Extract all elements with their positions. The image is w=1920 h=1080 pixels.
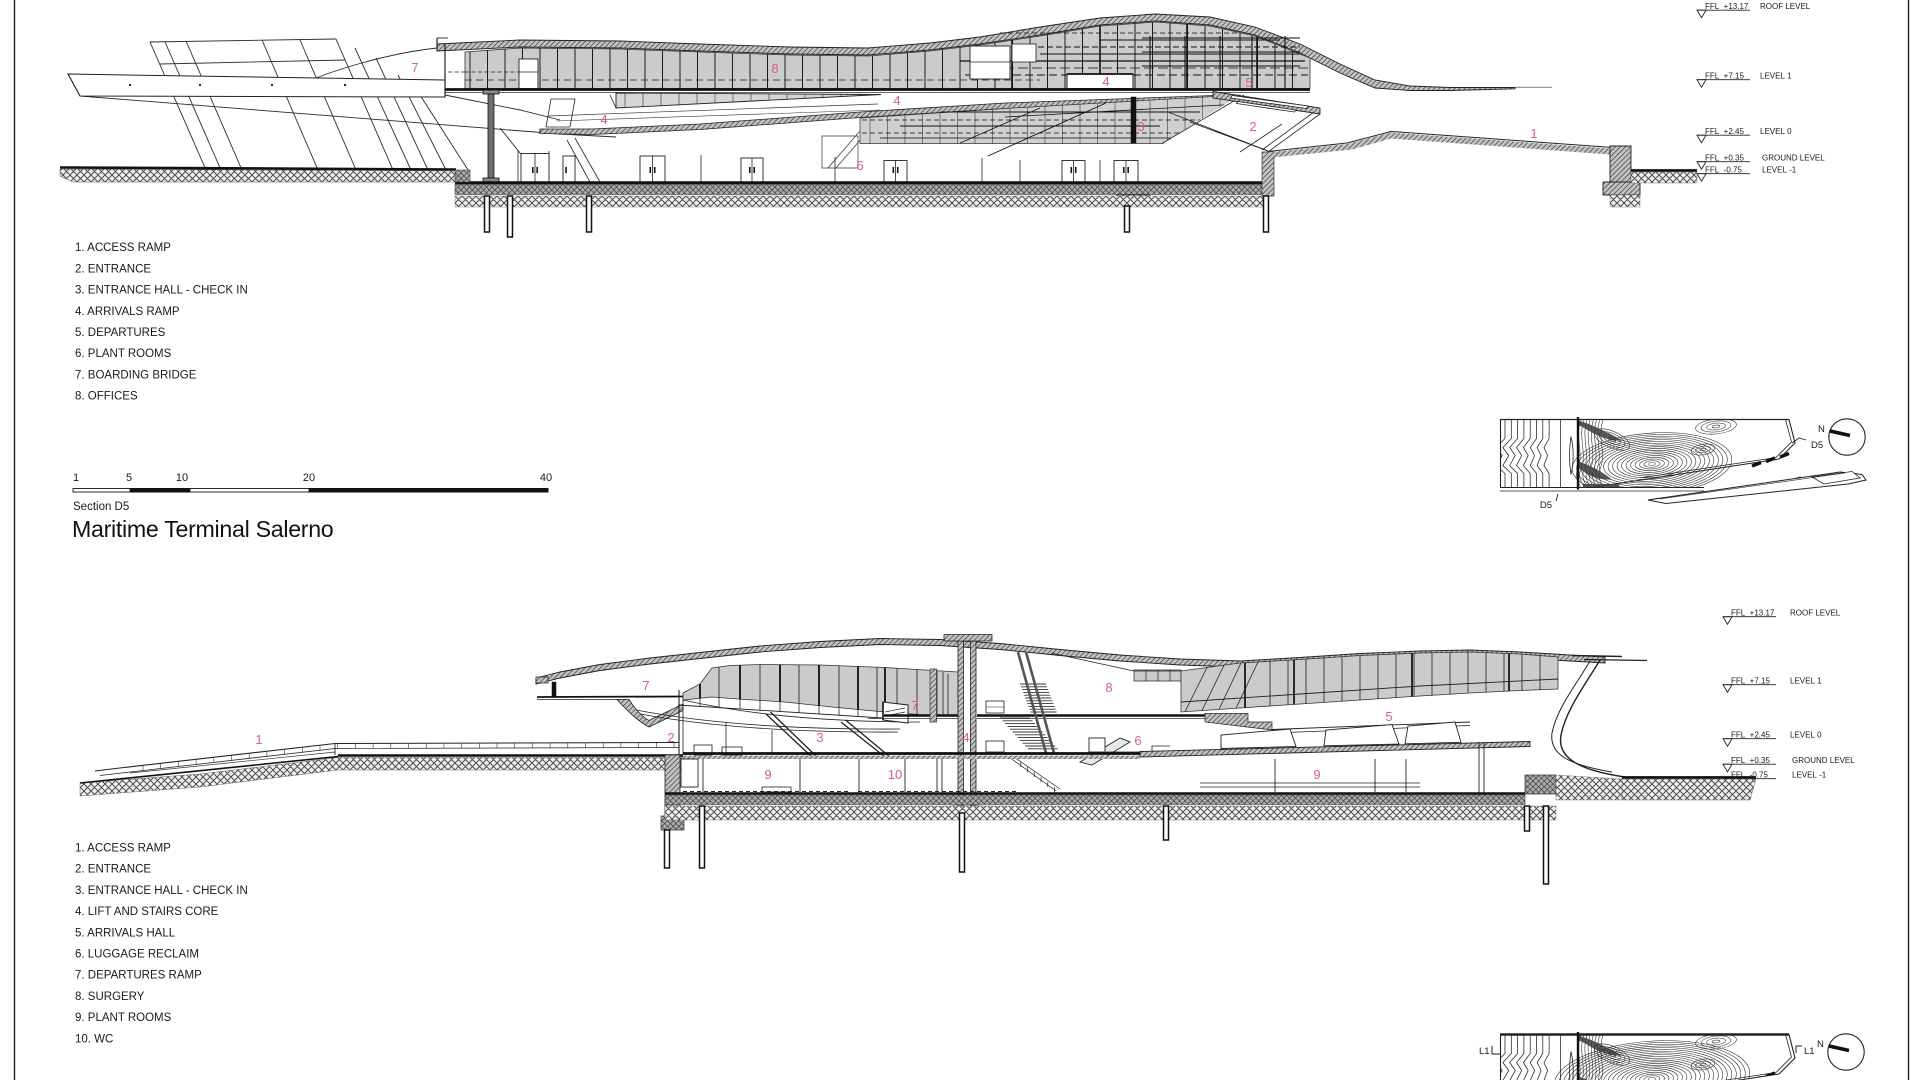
svg-text:N: N	[1817, 1039, 1824, 1050]
svg-text:1. ACCESS RAMP: 1. ACCESS RAMP	[75, 843, 171, 855]
svg-text:3. ENTRANCE HALL - CHECK IN: 3. ENTRANCE HALL - CHECK IN	[75, 885, 248, 897]
svg-text:10. WC: 10. WC	[75, 1033, 113, 1045]
svg-text:10: 10	[176, 472, 188, 484]
svg-text:5. DEPARTURES: 5. DEPARTURES	[75, 327, 166, 339]
svg-text:4: 4	[1102, 74, 1109, 89]
svg-text:4: 4	[600, 112, 607, 127]
svg-text:N: N	[1818, 424, 1825, 435]
svg-text:10: 10	[888, 767, 902, 782]
svg-text:L1: L1	[1804, 1046, 1815, 1057]
svg-text:2. ENTRANCE: 2. ENTRANCE	[75, 263, 151, 275]
svg-text:2: 2	[1249, 119, 1256, 134]
svg-text:8: 8	[1105, 680, 1112, 695]
svg-text:LEVEL 0: LEVEL 0	[1760, 127, 1792, 136]
svg-text:Maritime Terminal Salerno: Maritime Terminal Salerno	[72, 516, 333, 542]
svg-text:2: 2	[667, 730, 674, 745]
svg-text:1: 1	[255, 732, 262, 747]
svg-text:LEVEL 1: LEVEL 1	[1760, 72, 1792, 81]
svg-text:LEVEL -1: LEVEL -1	[1762, 166, 1797, 175]
svg-text:40: 40	[540, 472, 552, 484]
svg-text:1. ACCESS RAMP: 1. ACCESS RAMP	[75, 242, 171, 254]
svg-text:4. LIFT AND STAIRS CORE: 4. LIFT AND STAIRS CORE	[75, 906, 219, 918]
svg-text:D5: D5	[1811, 440, 1823, 451]
svg-text:5: 5	[1245, 75, 1252, 90]
svg-text:3: 3	[816, 730, 823, 745]
svg-text:7: 7	[911, 698, 918, 713]
svg-text:8. SURGERY: 8. SURGERY	[75, 991, 145, 1003]
svg-text:9. PLANT ROOMS: 9. PLANT ROOMS	[75, 1012, 172, 1024]
svg-text:5. ARRIVALS HALL: 5. ARRIVALS HALL	[75, 927, 176, 939]
svg-text:LEVEL 1: LEVEL 1	[1790, 677, 1822, 686]
svg-text:8. OFFICES: 8. OFFICES	[75, 391, 138, 403]
svg-text:D5: D5	[1540, 500, 1552, 511]
svg-text:7. BOARDING BRIDGE: 7. BOARDING BRIDGE	[75, 369, 197, 381]
svg-text:ROOF LEVEL: ROOF LEVEL	[1790, 609, 1841, 618]
svg-text:1: 1	[73, 472, 79, 484]
svg-text:6: 6	[1134, 733, 1141, 748]
svg-text:20: 20	[303, 472, 315, 484]
svg-text:7: 7	[642, 678, 649, 693]
svg-text:4: 4	[962, 730, 969, 745]
svg-text:ROOF LEVEL: ROOF LEVEL	[1760, 2, 1811, 11]
svg-text:5: 5	[1385, 709, 1392, 724]
svg-text:1: 1	[1530, 126, 1537, 141]
svg-text:LEVEL 0: LEVEL 0	[1790, 731, 1822, 740]
svg-text:8: 8	[771, 61, 778, 76]
svg-text:6: 6	[856, 158, 863, 173]
svg-text:GROUND LEVEL: GROUND LEVEL	[1792, 756, 1855, 765]
svg-text:7. DEPARTURES RAMP: 7. DEPARTURES RAMP	[75, 970, 202, 982]
svg-text:4: 4	[893, 93, 900, 108]
svg-text:9: 9	[1313, 767, 1320, 782]
svg-text:Section D5: Section D5	[73, 501, 129, 513]
svg-text:LEVEL -1: LEVEL -1	[1792, 771, 1827, 780]
svg-text:L1: L1	[1479, 1046, 1490, 1057]
svg-text:2. ENTRANCE: 2. ENTRANCE	[75, 864, 151, 876]
svg-text:6. LUGGAGE RECLAIM: 6. LUGGAGE RECLAIM	[75, 949, 199, 961]
svg-text:3. ENTRANCE HALL - CHECK IN: 3. ENTRANCE HALL - CHECK IN	[75, 285, 248, 297]
svg-text:5: 5	[126, 472, 132, 484]
svg-text:3: 3	[1137, 119, 1144, 134]
svg-text:GROUND LEVEL: GROUND LEVEL	[1762, 154, 1825, 163]
svg-text:9: 9	[764, 767, 771, 782]
svg-text:6. PLANT ROOMS: 6. PLANT ROOMS	[75, 348, 172, 360]
svg-text:4. ARRIVALS RAMP: 4. ARRIVALS RAMP	[75, 306, 180, 318]
svg-text:7: 7	[411, 60, 418, 75]
